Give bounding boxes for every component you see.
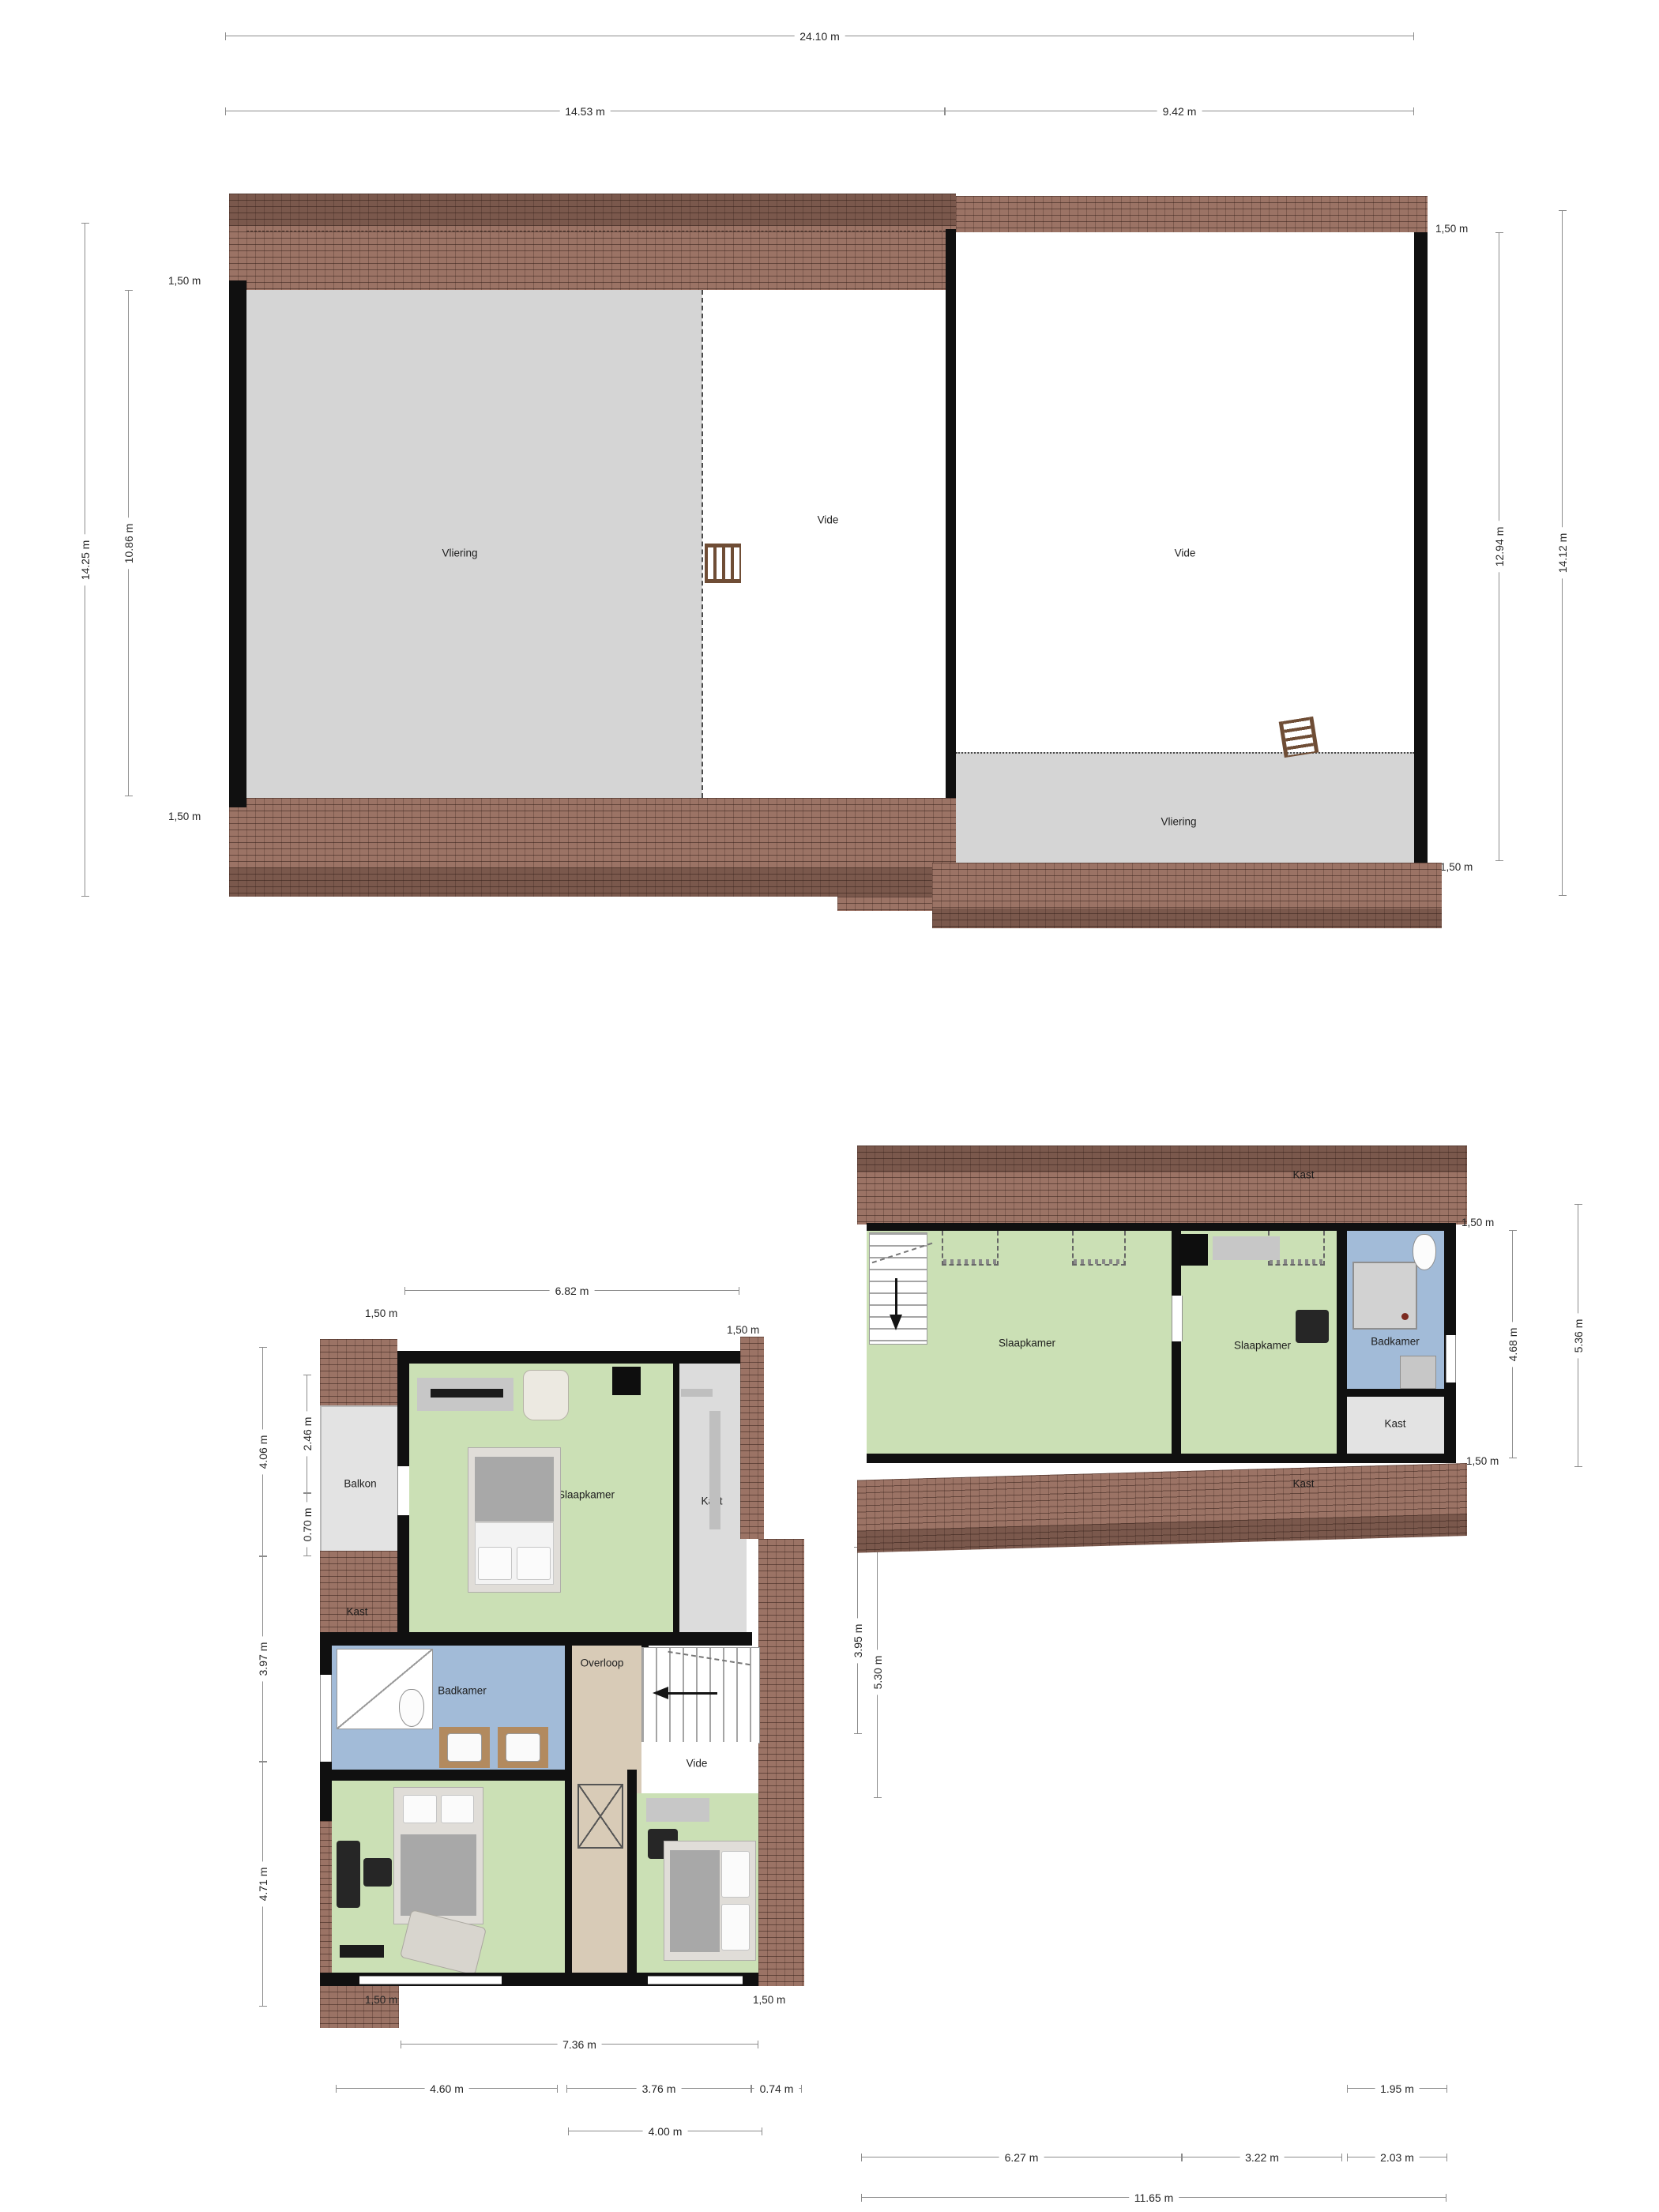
- wall: [320, 1632, 752, 1646]
- dim-f1-bottom-3: 0.74 m: [751, 2088, 802, 2089]
- dim-label: 14.53 m: [559, 105, 611, 118]
- dim-label: 24.10 m: [794, 30, 845, 43]
- dim-f1-left-mid: 3.97 m: [262, 1556, 263, 1762]
- room-label: Vliering: [442, 547, 477, 559]
- dim-label: 5.36 m: [1572, 1313, 1585, 1358]
- bed-icon: [664, 1841, 756, 1961]
- bed-icon: [468, 1447, 561, 1593]
- toilet-icon: [1413, 1234, 1436, 1270]
- dim-label: 4.00 m: [643, 2125, 688, 2138]
- sink-icon: [439, 1727, 490, 1768]
- dim-label: 14.25 m: [79, 534, 92, 585]
- dim-label: 3.95 m: [852, 1618, 864, 1663]
- room-label: Vide: [818, 514, 839, 526]
- window: [648, 1976, 743, 1984]
- ladder-icon: [705, 544, 741, 583]
- dim-f1-left-inner-top: 2.46 m: [307, 1375, 307, 1493]
- room-label: Vide: [1175, 547, 1196, 559]
- dim-f1-left-bottom: 4.71 m: [262, 1762, 263, 2007]
- closet-shelf: [709, 1411, 720, 1529]
- dim-label: 0.74 m: [754, 2082, 799, 2095]
- tv-icon: [340, 1945, 384, 1958]
- sink-icon: [498, 1727, 548, 1768]
- roof-patch: [320, 1339, 397, 1405]
- tv-icon: [431, 1389, 503, 1398]
- roof-band-top: [857, 1145, 1467, 1224]
- dim-attic-right-inner-height: 12.94 m: [1499, 232, 1499, 861]
- armchair-icon: [523, 1370, 569, 1420]
- dim-attic-right-outer-height: 14.12 m: [1562, 210, 1563, 896]
- wall: [397, 1351, 752, 1364]
- roof-patch-kast: [320, 1551, 397, 1646]
- room-label: Badkamer: [1371, 1336, 1420, 1348]
- vliering-edge-dashed: [702, 290, 703, 798]
- roof-strip: [758, 1539, 804, 1986]
- wall: [946, 229, 956, 798]
- wall: [867, 1223, 1456, 1231]
- chair-icon: [363, 1858, 392, 1887]
- dim-attic-left-outer-height: 14.25 m: [85, 223, 85, 897]
- dim-label: 7.36 m: [557, 2038, 602, 2051]
- dim-label: 4.68 m: [1507, 1322, 1519, 1367]
- dim-f1-bottom-total: 7.36 m: [401, 2044, 758, 2045]
- door-opening: [1172, 1296, 1183, 1341]
- room-label: Slaapkamer: [1234, 1340, 1291, 1352]
- stairs-arrow-left-icon: [653, 1687, 668, 1699]
- room-vide-right: [956, 232, 1414, 752]
- stairs-arrow: [895, 1278, 897, 1318]
- dim-label: 3.76 m: [637, 2082, 682, 2095]
- dim-f1-left-small: 0.70 m: [307, 1493, 307, 1556]
- room-label: Badkamer: [438, 1685, 487, 1697]
- dim-label: 5.30 m: [871, 1650, 884, 1695]
- dim-label: 9.42 m: [1157, 105, 1202, 118]
- dim-f1-bottom-1: 4.60 m: [336, 2088, 558, 2089]
- roof-window-dashed: [942, 1231, 999, 1266]
- desk-icon: [1213, 1236, 1280, 1260]
- window: [320, 1675, 332, 1762]
- pillow: [478, 1547, 513, 1580]
- mattress: [670, 1850, 720, 1952]
- desk-icon: [646, 1798, 709, 1822]
- roof-band-top: [956, 196, 1428, 232]
- closet-shelf: [681, 1389, 713, 1397]
- mattress: [475, 1457, 554, 1522]
- room-label: Vliering: [1161, 816, 1196, 828]
- dim-label: 3.97 m: [257, 1637, 269, 1682]
- dim-f2-bottom-total: 11.65 m: [861, 2197, 1446, 2198]
- dim-attic-right-width: 9.42 m: [945, 111, 1414, 111]
- room-label: Slaapkamer: [999, 1337, 1055, 1349]
- knee-height-label: 1,50 m: [1461, 1217, 1494, 1228]
- dim-f2-right-inner: 4.68 m: [1512, 1230, 1513, 1458]
- knee-height-label: 1,50 m: [1440, 861, 1473, 873]
- pillow: [517, 1547, 551, 1580]
- knee-height-label: 1,50 m: [727, 1324, 759, 1336]
- dim-f2-bottom-2: 3.22 m: [1182, 2157, 1342, 2157]
- dim-label: 6.27 m: [999, 2151, 1044, 2164]
- chimney: [612, 1367, 641, 1395]
- wall: [1347, 1389, 1444, 1397]
- stairwell-void: [577, 1784, 623, 1849]
- dim-label: 3.22 m: [1240, 2151, 1285, 2164]
- dim-label: 6.82 m: [550, 1285, 595, 1297]
- dim-label: 10.86 m: [122, 517, 135, 569]
- shower-icon: [1352, 1262, 1417, 1330]
- room-label: Kast: [1292, 1478, 1314, 1490]
- room-vliering-right: [956, 752, 1414, 864]
- ladder-icon: [1279, 717, 1319, 758]
- dim-attic-left-inner-height: 10.86 m: [128, 290, 129, 796]
- dim-f1-top-width: 6.82 m: [404, 1290, 739, 1291]
- dim-f1-right-lower: 5.30 m: [877, 1547, 878, 1798]
- dim-label: 11.65 m: [1129, 2191, 1179, 2204]
- stairs-arrow-down-icon: [890, 1315, 902, 1330]
- roof-window-dashed: [1072, 1231, 1126, 1266]
- dim-label: 4.06 m: [257, 1429, 269, 1474]
- dim-attic-left-width: 14.53 m: [225, 111, 945, 111]
- wall: [1337, 1231, 1347, 1454]
- pillow: [403, 1795, 436, 1823]
- dim-f2-bottom-3: 2.03 m: [1347, 2157, 1447, 2157]
- dim-label: 4.60 m: [424, 2082, 469, 2095]
- sink-icon: [1400, 1356, 1436, 1389]
- knee-height-label: 1,50 m: [1435, 223, 1468, 235]
- wall: [627, 1770, 637, 1985]
- knee-height-label: 1,50 m: [1466, 1455, 1499, 1467]
- room-label: Balkon: [344, 1478, 376, 1490]
- room-label: Kast: [1384, 1418, 1405, 1430]
- dim-f2-right-outer: 5.36 m: [1578, 1204, 1578, 1467]
- room-label: Slaapkamer: [558, 1489, 615, 1501]
- dim-f1-bottom-4: 4.00 m: [568, 2131, 762, 2131]
- dim-f1-right-upper: 3.95 m: [857, 1547, 858, 1734]
- desk-icon: [337, 1841, 360, 1908]
- dim-label: 4.71 m: [257, 1862, 269, 1907]
- dim-f2-bottom-kast: 1.95 m: [1347, 2088, 1447, 2089]
- dim-label: 0.70 m: [301, 1503, 314, 1548]
- roof-outline-dashed: [246, 231, 946, 231]
- dim-label: 1.95 m: [1375, 2082, 1420, 2095]
- room-label: Vide: [687, 1758, 708, 1770]
- floor-plan-sheet: 24.10 m 14.53 m 9.42 m 14.25 m 10.86 m 1…: [0, 0, 1659, 2212]
- knee-height-label: 1,50 m: [168, 275, 201, 287]
- chimney: [1179, 1234, 1208, 1266]
- dim-f2-bottom-1: 6.27 m: [861, 2157, 1182, 2157]
- wall: [320, 1770, 600, 1781]
- wall: [867, 1454, 1456, 1463]
- mattress: [401, 1834, 476, 1916]
- bed-icon: [393, 1787, 483, 1924]
- roof-band-bottom: [932, 863, 1442, 928]
- window: [359, 1976, 502, 1984]
- room-vliering-left: [246, 290, 702, 798]
- dim-attic-total-width: 24.10 m: [225, 36, 1414, 36]
- knee-height-label: 1,50 m: [365, 1994, 397, 2006]
- window: [1446, 1335, 1456, 1382]
- knee-height-label: 1,50 m: [168, 811, 201, 822]
- dim-f1-left-outer-top: 4.06 m: [262, 1347, 263, 1556]
- dim-label: 14.12 m: [1556, 528, 1569, 579]
- stairs-arrow: [668, 1692, 717, 1695]
- roof-band-bottom: [229, 798, 956, 897]
- dim-f1-bottom-2: 3.76 m: [566, 2088, 751, 2089]
- toilet-icon: [399, 1689, 424, 1727]
- room-label: Overloop: [581, 1657, 624, 1669]
- wall: [1414, 232, 1428, 863]
- roof-band-top: [229, 194, 956, 290]
- wall: [229, 280, 246, 807]
- room-label: Kast: [346, 1606, 367, 1618]
- room-label: Kast: [1292, 1169, 1314, 1181]
- pillow: [721, 1851, 750, 1898]
- roof-strip: [740, 1337, 764, 1539]
- pillow: [441, 1795, 474, 1823]
- knee-height-label: 1,50 m: [365, 1307, 397, 1319]
- chair-icon: [1296, 1310, 1329, 1343]
- pillow: [721, 1904, 750, 1951]
- knee-height-label: 1,50 m: [753, 1994, 785, 2006]
- roof-band-bottom: [857, 1463, 1467, 1553]
- dim-label: 12.94 m: [1493, 521, 1506, 573]
- dim-label: 2.03 m: [1375, 2151, 1420, 2164]
- dim-label: 2.46 m: [301, 1412, 314, 1457]
